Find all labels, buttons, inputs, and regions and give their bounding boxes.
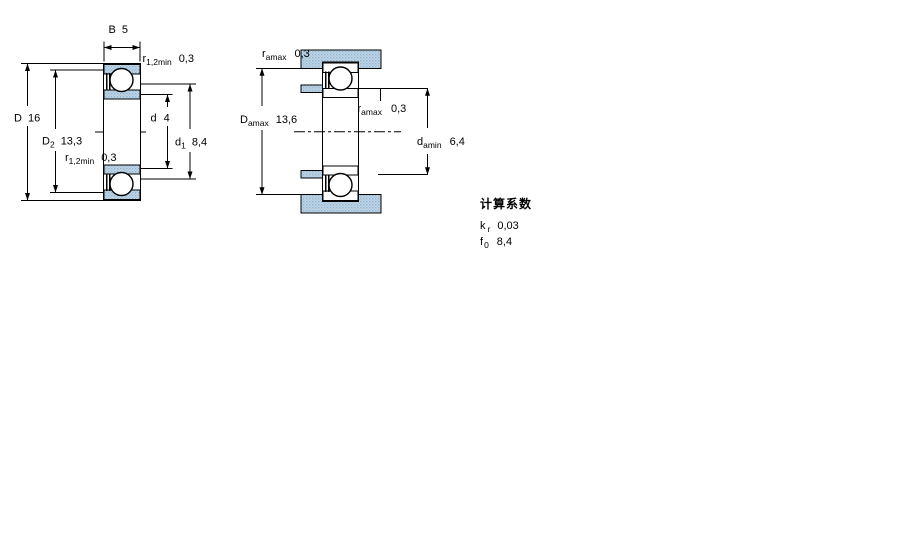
dim-label-Damax: Damax13,6 xyxy=(240,114,297,128)
right-seal-top-icon xyxy=(328,72,330,89)
calculation-factors-heading: 计算系数 xyxy=(480,196,532,211)
left-bearing-diagram: B5 D16 D213,3 r1,2min0,3 r1,2min0,3 d4 d… xyxy=(14,24,207,201)
dim-label-r12min-bottom: r1,2min0,3 xyxy=(65,152,116,166)
left-seal-bottom-icon xyxy=(109,174,111,191)
dim-label-damin: damin6,4 xyxy=(417,136,465,150)
dim-label-d: d4 xyxy=(151,113,170,125)
left-ball-bottom-icon xyxy=(110,173,133,196)
factor-f0: f08,4 xyxy=(480,236,512,250)
dim-label-D2: D213,3 xyxy=(42,136,82,150)
dim-label-B: B5 xyxy=(109,24,128,36)
right-seal-bottom-icon xyxy=(328,175,330,192)
factor-kr: kr0,03 xyxy=(480,220,519,234)
shaft-shoulder-bottom xyxy=(301,171,323,178)
dim-label-d1: d18,4 xyxy=(175,137,207,151)
left-seal-top-icon xyxy=(109,73,111,90)
dim-label-ramax-mid: ramax0,3 xyxy=(358,103,407,117)
right-abutment-diagram: ramax0,3 Damax13,6 ramax0,3 damin6,4 xyxy=(240,48,465,213)
dim-label-ramax-top: ramax0,3 xyxy=(262,48,310,62)
right-seal-top-icon xyxy=(325,72,327,89)
left-seal-top-icon xyxy=(106,73,108,90)
calculation-factors-block: 计算系数 kr0,03 f08,4 xyxy=(480,196,532,250)
bearing-drawing-page: B5 D16 D213,3 r1,2min0,3 r1,2min0,3 d4 d… xyxy=(0,0,900,560)
shaft-shoulder-top xyxy=(301,85,323,92)
dim-label-D: D16 xyxy=(14,113,40,125)
right-ball-bottom-icon xyxy=(329,174,352,197)
bearing-drawing-canvas: B5 D16 D213,3 r1,2min0,3 r1,2min0,3 d4 d… xyxy=(0,0,900,560)
dim-label-r12min-top: r1,2min0,3 xyxy=(143,53,194,67)
left-seal-bottom-icon xyxy=(106,174,108,191)
right-ball-top-icon xyxy=(329,67,352,90)
right-seal-bottom-icon xyxy=(325,175,327,192)
left-ball-top-icon xyxy=(110,69,133,92)
